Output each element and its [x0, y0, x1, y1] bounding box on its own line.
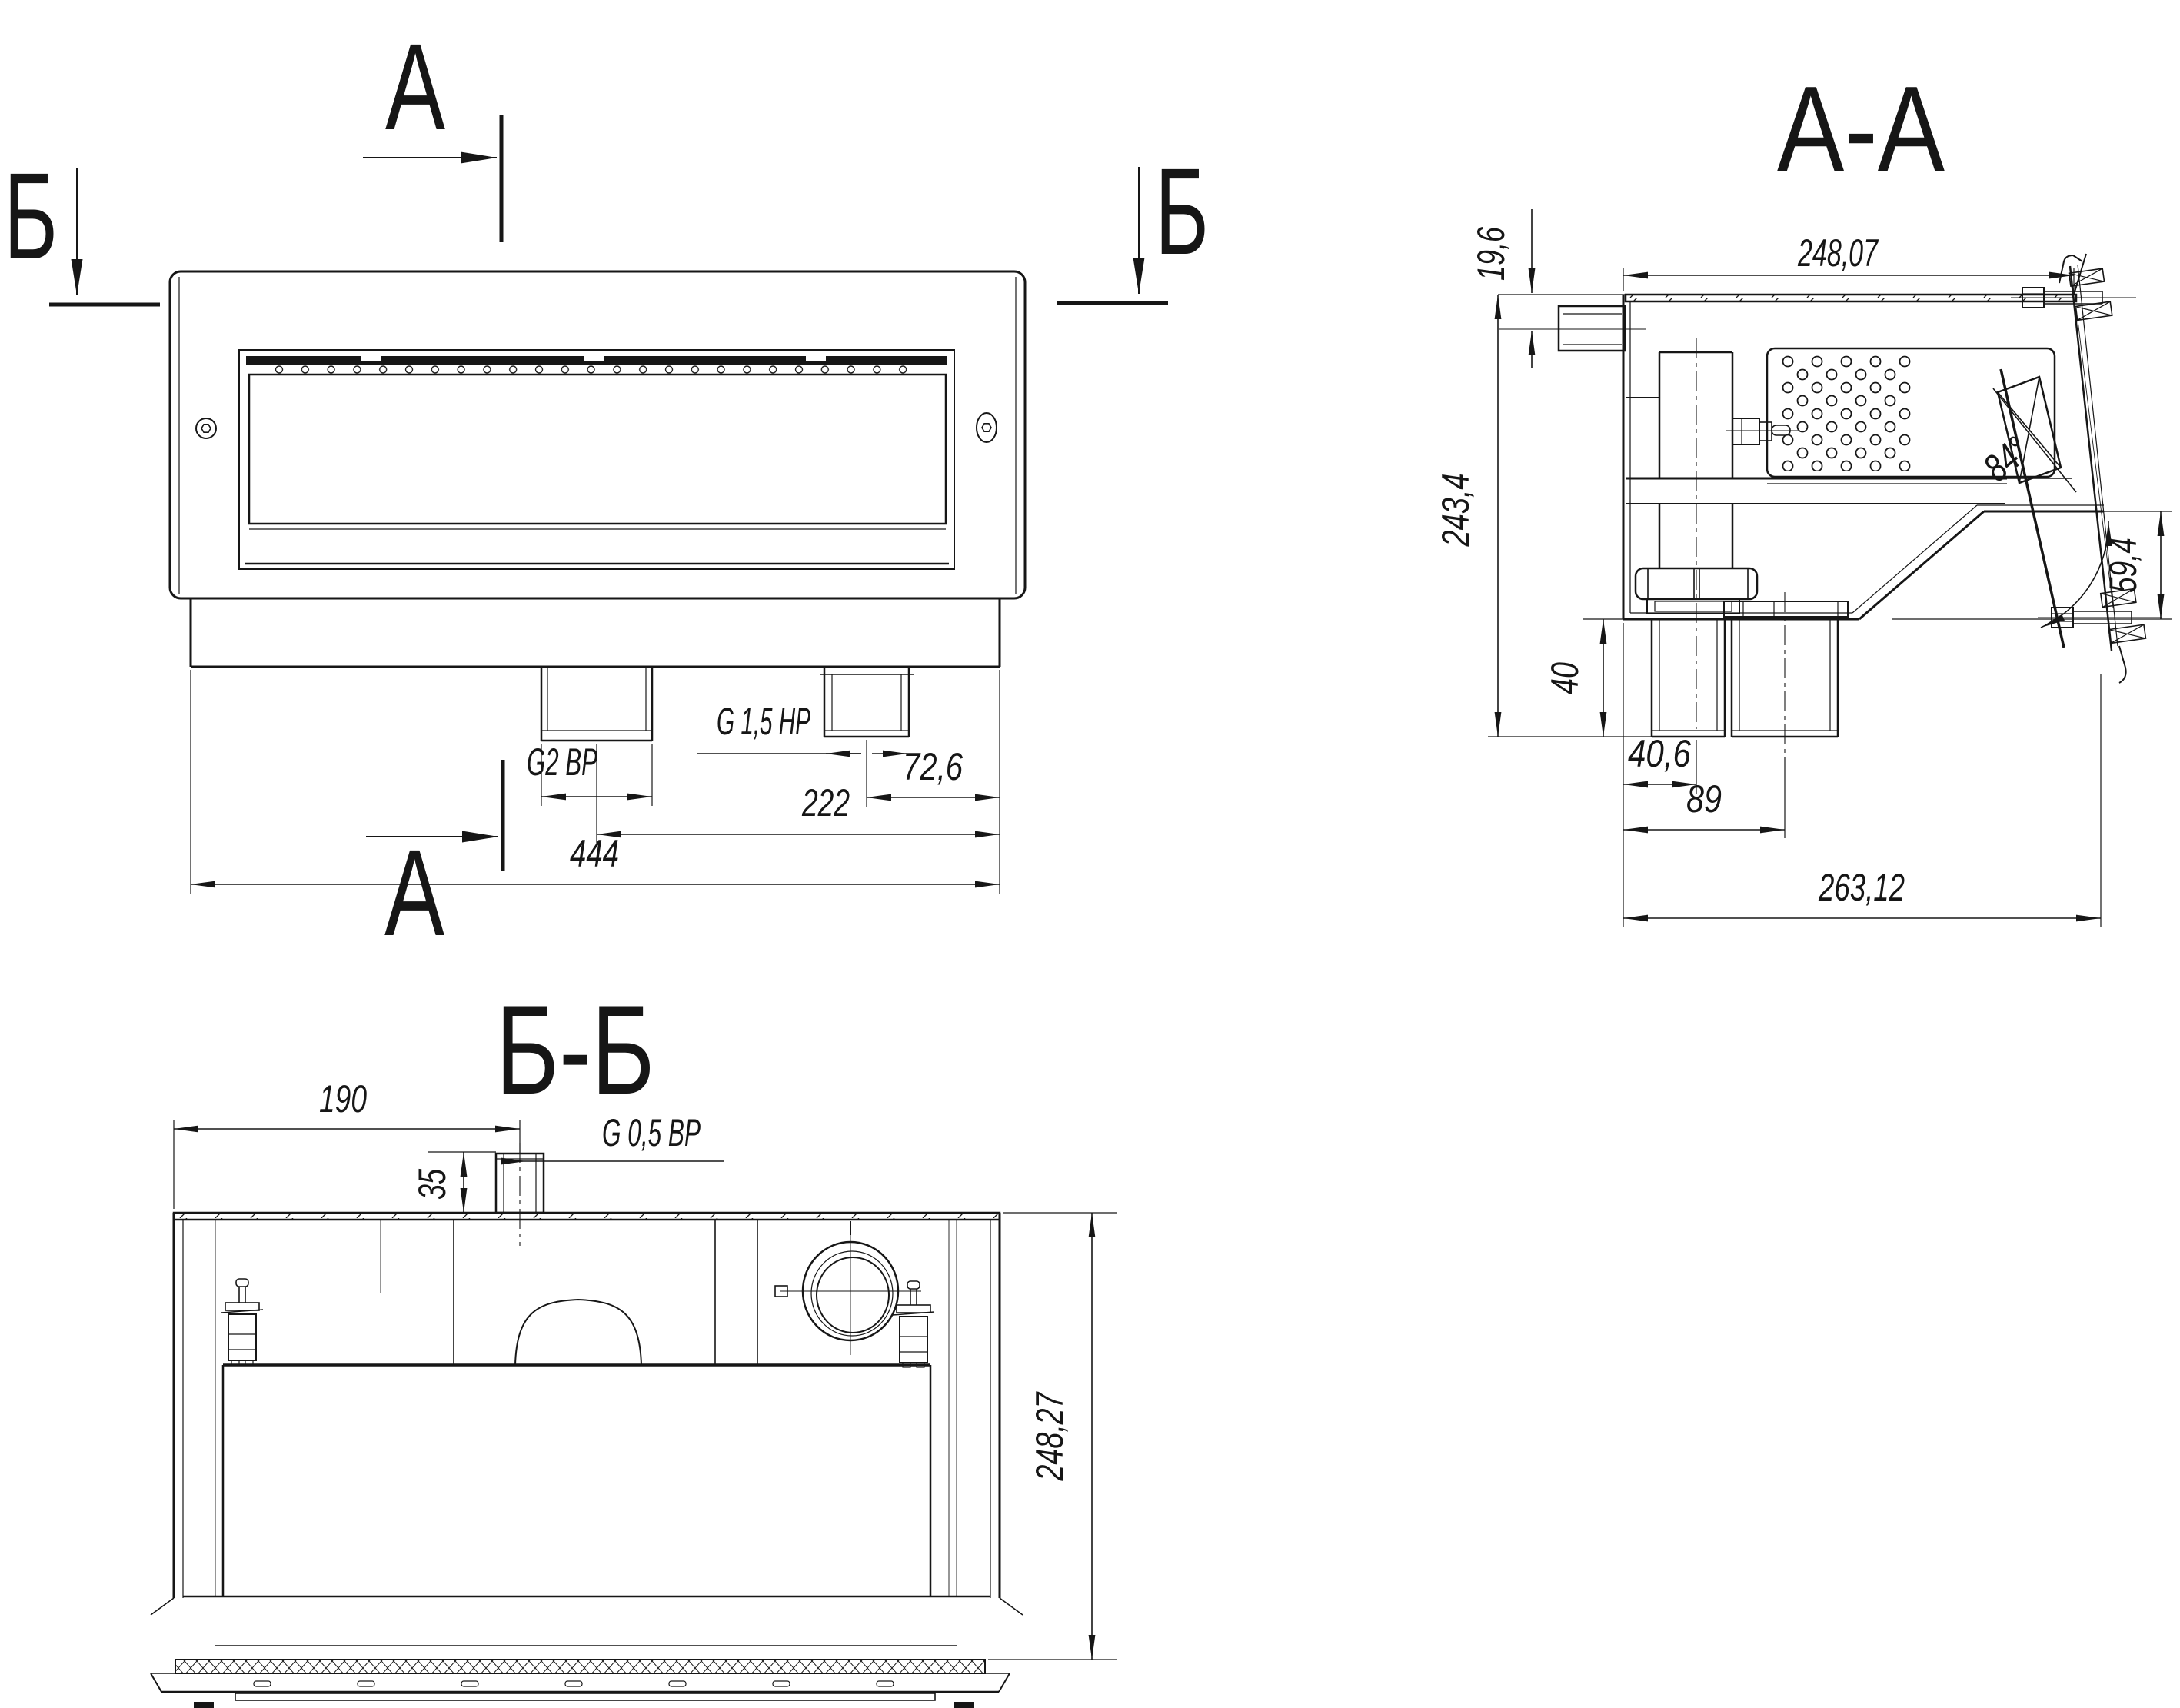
aa-bottom-slope: [1623, 505, 2104, 619]
dim-248-07: 248,07: [1797, 231, 1879, 275]
bb-floor: [151, 1596, 1023, 1646]
section-bb: Б-Б 190 35 G 0,5 ВР: [151, 979, 1117, 1708]
front-cut-marker-b-left: Б: [4, 147, 160, 305]
aa-top-plate: [1626, 295, 2076, 301]
bb-dim-35: 35: [411, 1152, 496, 1213]
aa-dim-248-07: 248,07: [1623, 231, 2074, 291]
dim-243-4: 243,4: [1434, 474, 1477, 548]
aa-louver-flap: [1993, 369, 2076, 648]
front-view: А Б Б: [4, 18, 1209, 961]
dim-40-6: 40,6: [1628, 732, 1691, 775]
dim-263-12: 263,12: [1818, 866, 1905, 909]
aa-angle-84: 84°: [1975, 428, 2108, 628]
front-top-plate: [170, 271, 1025, 598]
bb-arch-opening: [515, 1300, 641, 1365]
aa-side-fitting: [1559, 306, 1625, 351]
dim-59-4: 59,4: [2102, 538, 2145, 593]
aa-right-flange: [1724, 601, 1848, 617]
bb-inner-chamber: [223, 1300, 930, 1596]
bb-dim-248-27: 248,27: [988, 1213, 1117, 1660]
label-thread-g15: G 1,5 НР: [717, 700, 810, 743]
dim-72-6: 72,6: [903, 745, 963, 788]
front-slot-assembly: [239, 350, 954, 569]
front-dim-444: 444: [191, 832, 1000, 884]
bb-electrode-left: [221, 1279, 263, 1365]
slot-hole-row: [274, 365, 924, 375]
drawing-page: А Б Б: [0, 0, 2180, 1708]
section-aa-title: А-А: [1777, 62, 1945, 197]
bb-dim-190: 190: [174, 1077, 520, 1209]
cut-label-b-right: Б: [1155, 142, 1209, 280]
dim-40: 40: [1543, 662, 1586, 694]
dim-19-6: 19,6: [1469, 227, 1513, 281]
aa-dim-40: 40: [1543, 619, 1625, 737]
aa-duct: [1626, 338, 1732, 729]
front-cut-marker-b-right: Б: [1057, 142, 1209, 303]
dim-444: 444: [570, 832, 619, 875]
front-right-screw: [977, 413, 997, 442]
front-cut-marker-a-bottom: А: [366, 760, 503, 961]
front-cut-marker-a-top: А: [363, 18, 501, 242]
aa-body-wall: [1623, 295, 1630, 619]
dim-190: 190: [319, 1077, 367, 1120]
label-thread-g2: G2 ВР: [527, 741, 597, 784]
section-aa: А-А 248,07 19,6 243,4: [1434, 62, 2172, 927]
bb-partitions: [381, 1220, 757, 1365]
bb-tank-walls: [174, 1213, 1000, 1598]
bb-fitting-g05: [496, 1143, 544, 1246]
cut-label-a-bottom: А: [384, 824, 444, 961]
front-pipe-g15: [820, 667, 914, 737]
aa-pipe-left: [1652, 619, 1725, 737]
front-dim-222: 222: [597, 781, 1000, 834]
front-dim-g2: G2 ВР: [527, 741, 652, 797]
dim-89: 89: [1686, 777, 1722, 821]
cut-label-b-left: Б: [4, 147, 58, 285]
drawing-canvas: А Б Б: [0, 0, 2180, 1708]
dim-222: 222: [801, 781, 850, 824]
dim-248-27: 248,27: [1028, 1391, 1071, 1481]
bb-foot-right: [954, 1702, 974, 1708]
front-pipe-g2: [541, 667, 652, 741]
cut-label-a-top: А: [385, 18, 445, 155]
bb-drip-tray: [151, 1673, 1010, 1708]
bb-tank-top: [174, 1213, 1000, 1220]
front-tank-body: [191, 598, 1000, 667]
label-thread-g05: G 0,5 ВР: [602, 1111, 701, 1154]
bb-foot-left: [194, 1702, 214, 1708]
aa-front-assembly: [2011, 254, 2162, 683]
front-dim-g15: G 1,5 НР: [697, 700, 907, 754]
dim-35: 35: [411, 1169, 454, 1200]
aa-bottom-dims: 40,6 89 263,12: [1623, 623, 2101, 927]
section-bb-title: Б-Б: [496, 979, 655, 1120]
bb-heater-strip: [175, 1660, 985, 1673]
aa-dim-19-6: 19,6: [1469, 209, 1646, 368]
front-left-screw: [196, 418, 216, 438]
